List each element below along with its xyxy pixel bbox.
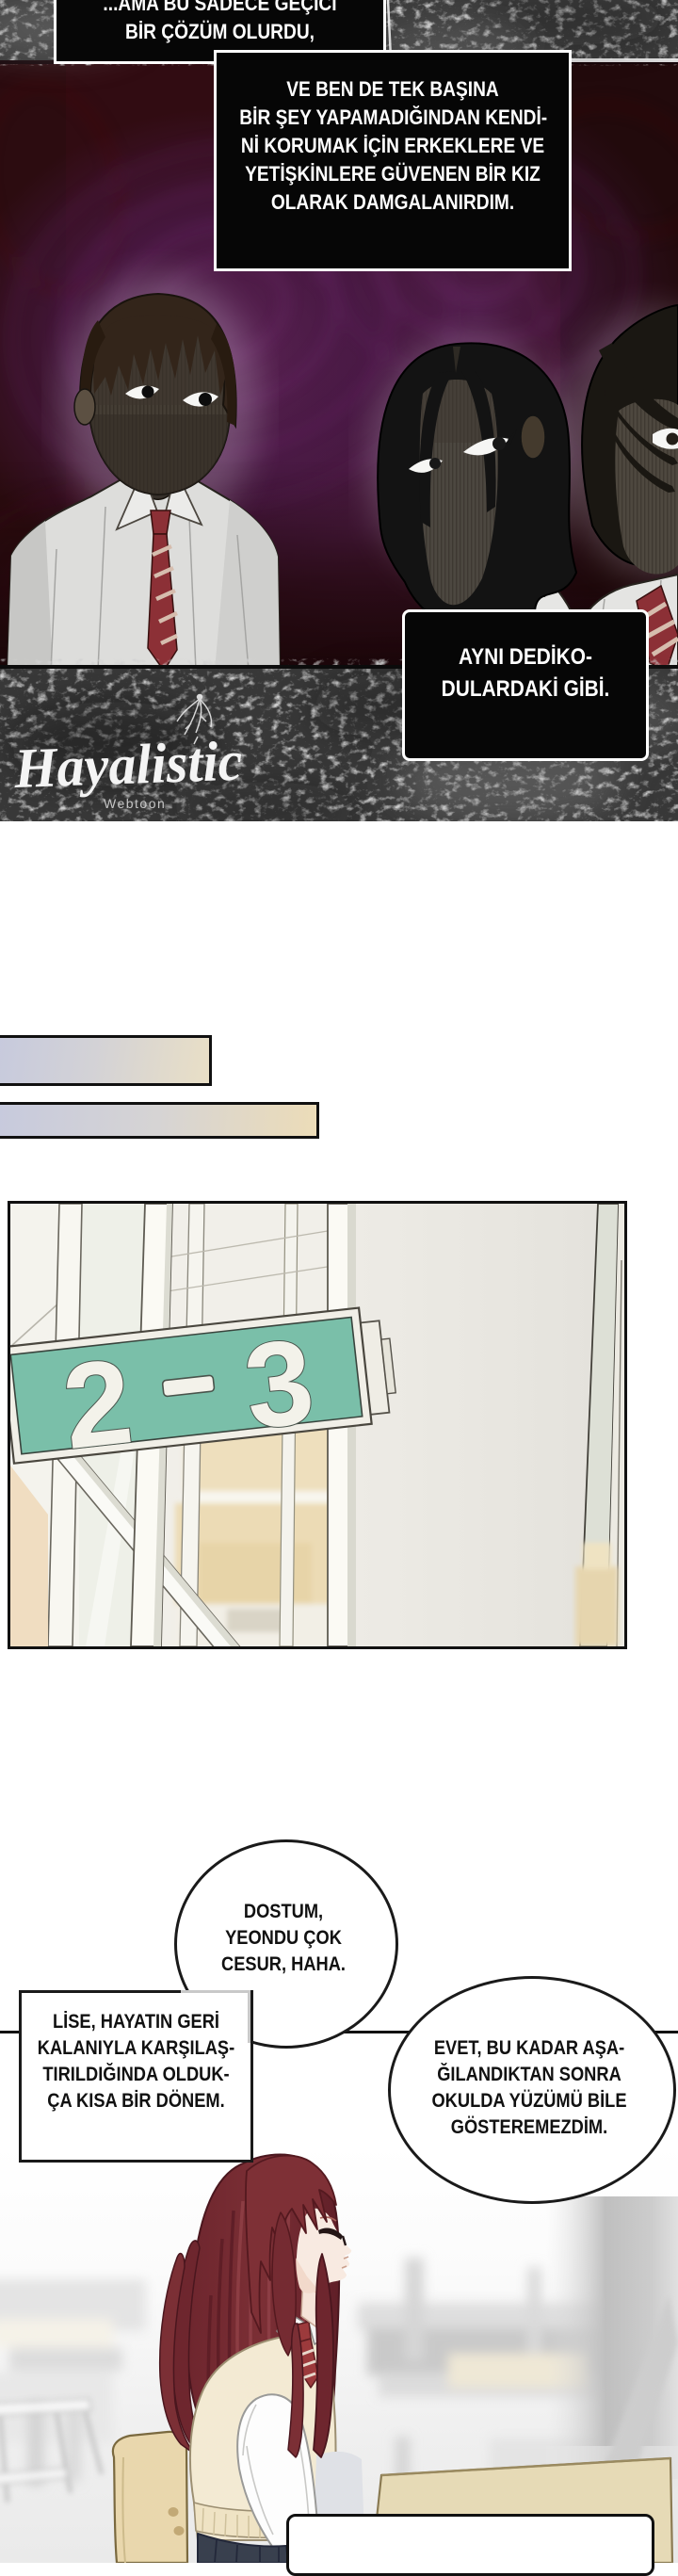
svg-text:Hayalistic: Hayalistic [12,730,243,800]
svg-text:Webtoon: Webtoon [104,796,166,811]
